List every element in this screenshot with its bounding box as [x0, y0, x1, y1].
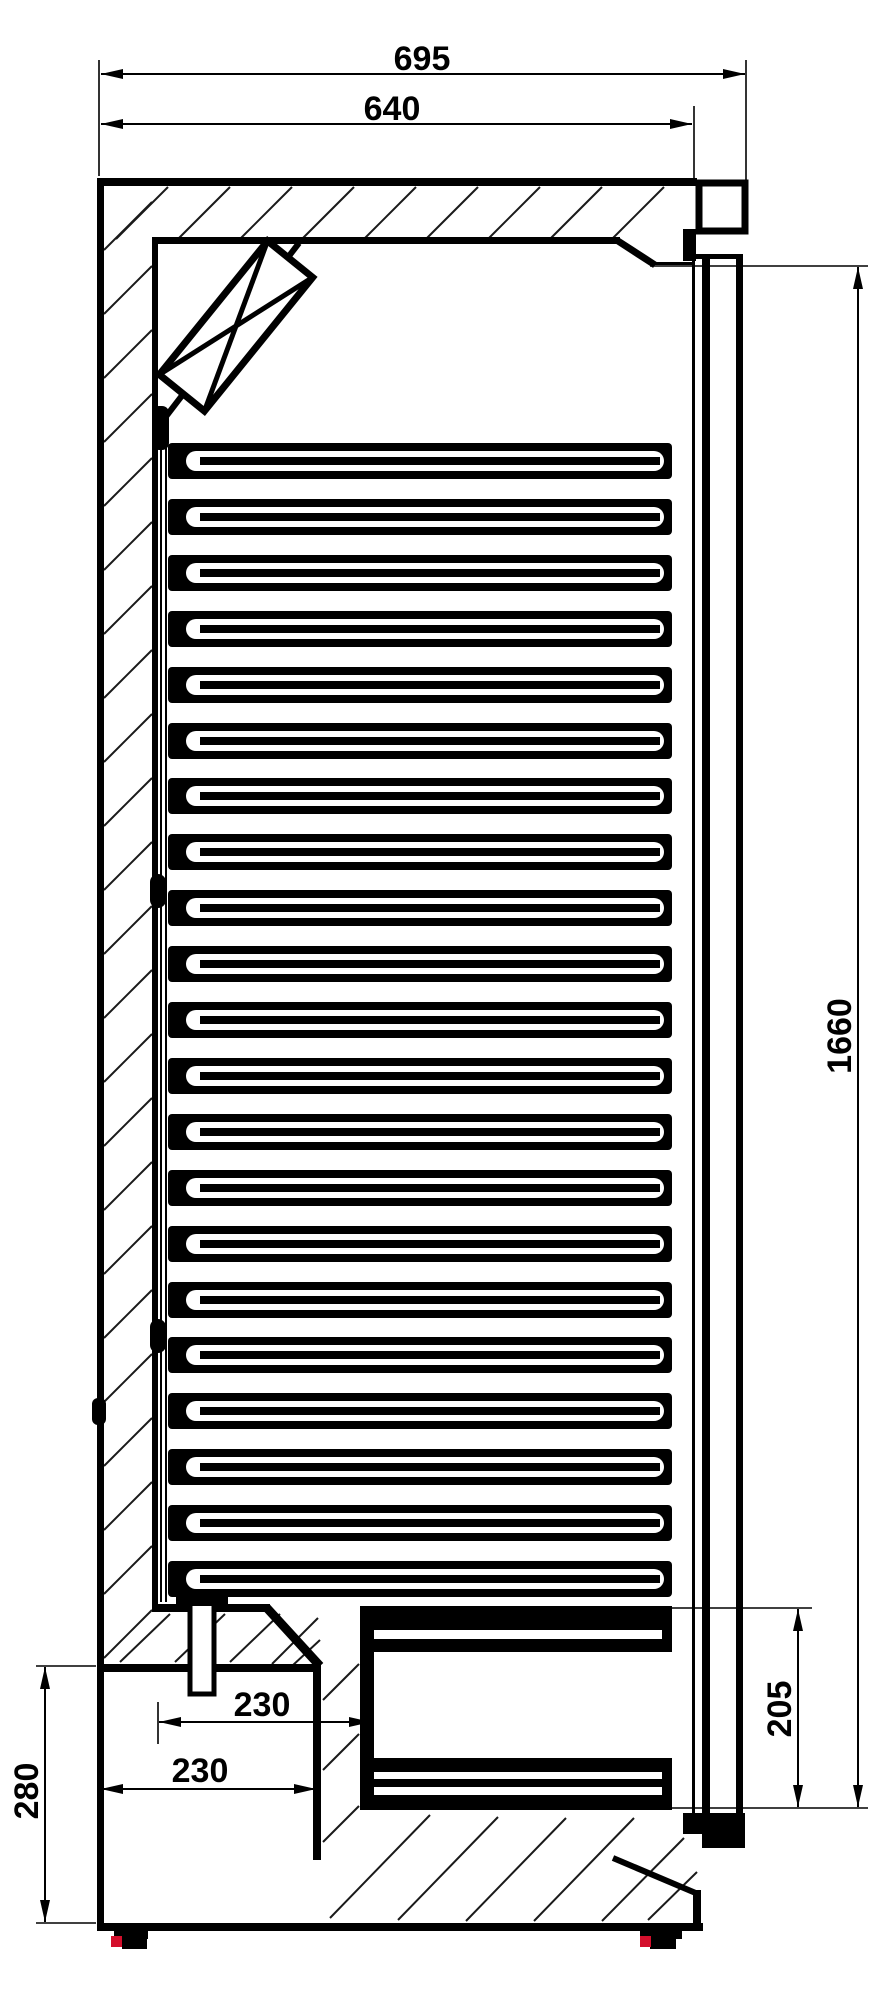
door-top-edge: [692, 254, 743, 259]
hinge-bottom-step: [702, 1833, 745, 1848]
foot-right: [640, 1929, 682, 1949]
hinge-top-block: [699, 183, 745, 231]
door-assembly: [683, 183, 745, 1848]
inner-liner-top: [152, 237, 620, 244]
top-wall: [97, 178, 697, 186]
hinge-bottom-block: [683, 1813, 745, 1834]
drawing-canvas: 695 640 1660 205 280: [0, 0, 896, 2000]
dim-height-door: 1660: [821, 267, 863, 1807]
feet: [111, 1929, 682, 1949]
bottom-evaporator: [360, 1606, 672, 1810]
fan-assembly: [152, 241, 313, 450]
dim-label-height-evap-bottom: 205: [761, 1681, 799, 1738]
dim-height-evap-bottom: 205: [761, 1609, 803, 1807]
ceiling-thin: [653, 262, 694, 265]
coil-shelf: [168, 499, 672, 535]
coil-shelf: [168, 1170, 672, 1206]
coil-shelf: [168, 946, 672, 982]
foot-left: [111, 1929, 148, 1949]
tube-clip: [150, 1319, 166, 1353]
drain-tee: [176, 1594, 228, 1606]
door-outer-face: [736, 258, 743, 1815]
coil-shelf: [168, 1505, 672, 1541]
foot-right-accent: [640, 1936, 651, 1947]
coil-shelf: [168, 1393, 672, 1429]
coil-shelf: [168, 834, 672, 870]
coil-shelf: [168, 1449, 672, 1485]
floor-slant: [266, 1607, 320, 1666]
coil-shelf: [168, 1282, 672, 1318]
coil-shelf: [168, 1561, 672, 1597]
door-mid-panel: [702, 258, 710, 1815]
coil-shelf: [168, 778, 672, 814]
bottom-wall: [97, 1923, 703, 1931]
coil-shelf: [168, 1114, 672, 1150]
coil-shelf: [168, 611, 672, 647]
dim-depth-step-lower: 230: [101, 1752, 316, 1794]
wall-clip: [92, 1398, 106, 1425]
dim-label-height-base: 280: [8, 1763, 46, 1820]
bottom-rail-vertical: [693, 1890, 701, 1926]
coil-shelf: [168, 1226, 672, 1262]
coil-shelf: [168, 667, 672, 703]
dim-label-depth-step-lower: 230: [172, 1752, 229, 1790]
ceiling-slant: [618, 241, 655, 265]
dim-label-width-outer: 695: [394, 40, 451, 78]
bottom-rail-slant: [613, 1858, 698, 1894]
dim-width-inner: 640: [101, 90, 692, 129]
step-vertical: [313, 1664, 321, 1860]
dim-width-outer: 695: [101, 40, 745, 79]
coil-shelf: [168, 1058, 672, 1094]
tube-clip: [150, 874, 166, 908]
dim-label-height-door: 1660: [821, 998, 859, 1074]
coil-shelf: [168, 1002, 672, 1038]
coil-shelf: [168, 555, 672, 591]
dim-label-depth-step-upper: 230: [234, 1686, 291, 1724]
coil-shelf: [168, 1337, 672, 1373]
dim-height-base: 280: [8, 1667, 50, 1922]
door-inner-face: [692, 258, 695, 1815]
coil-shelf: [168, 723, 672, 759]
dim-label-width-inner: 640: [364, 90, 421, 128]
fan-icon: [159, 241, 312, 411]
coil-shelf: [168, 443, 672, 479]
shelf-stack: [168, 443, 672, 1597]
technical-drawing: 695 640 1660 205 280: [0, 0, 896, 2000]
coil-shelf: [168, 890, 672, 926]
foot-left-accent: [111, 1936, 122, 1947]
